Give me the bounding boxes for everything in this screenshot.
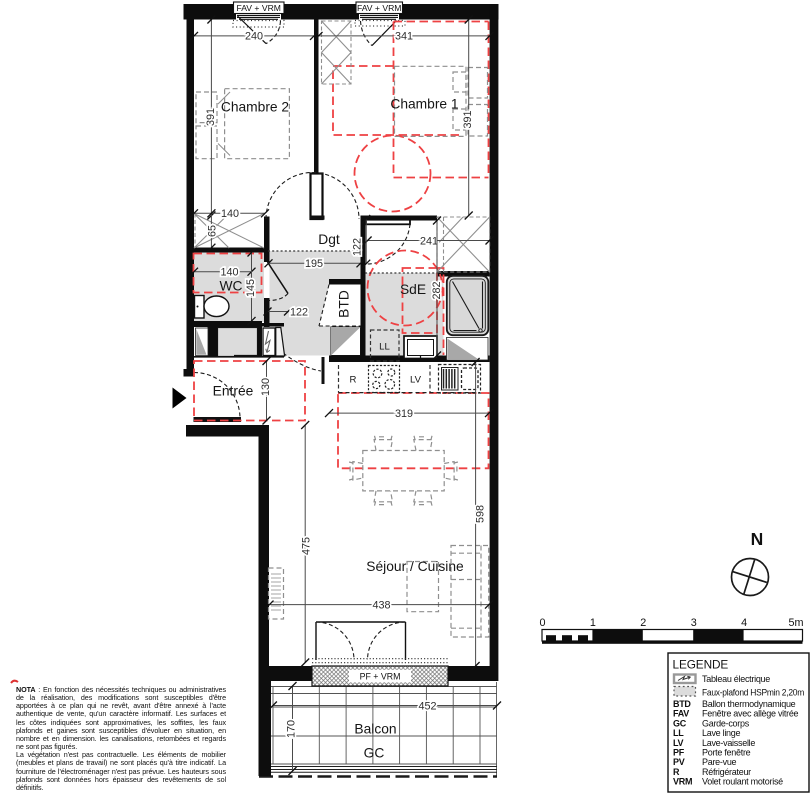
- svg-text:Dgt: Dgt: [318, 232, 340, 247]
- svg-text:3: 3: [691, 617, 697, 629]
- svg-text:LL: LL: [673, 728, 684, 738]
- svg-text:Séjour / Cuisine: Séjour / Cuisine: [366, 559, 464, 574]
- svg-text:FAV: FAV: [673, 709, 689, 719]
- svg-text:130: 130: [260, 378, 272, 396]
- svg-text:Tableau électrique: Tableau électrique: [702, 674, 770, 684]
- svg-text:PF + VRM: PF + VRM: [360, 672, 401, 682]
- svg-text:475: 475: [300, 537, 312, 555]
- svg-text:WC: WC: [220, 279, 243, 294]
- svg-text:282: 282: [431, 281, 443, 299]
- svg-text:Fenêtre avec allège vitrée: Fenêtre avec allège vitrée: [702, 709, 799, 719]
- svg-text:Balcon: Balcon: [354, 722, 396, 737]
- svg-text:GC: GC: [364, 746, 385, 761]
- svg-text:LL: LL: [379, 342, 390, 353]
- svg-text:240: 240: [245, 31, 263, 43]
- svg-text:598: 598: [474, 505, 486, 523]
- svg-text:140: 140: [221, 208, 239, 220]
- svg-text:Lave-vaisselle: Lave-vaisselle: [702, 738, 755, 748]
- svg-text:145: 145: [245, 279, 257, 297]
- svg-text:Lave linge: Lave linge: [702, 728, 741, 738]
- svg-text:0: 0: [539, 617, 545, 629]
- svg-text:Garde-corps: Garde-corps: [702, 718, 750, 728]
- svg-text:VRM: VRM: [673, 777, 692, 787]
- svg-text:341: 341: [395, 31, 413, 43]
- svg-text:LV: LV: [673, 738, 684, 748]
- svg-text:Porte fenêtre: Porte fenêtre: [702, 748, 751, 758]
- svg-text:N: N: [751, 529, 764, 549]
- svg-text:R: R: [673, 767, 680, 777]
- svg-text:Réfrigérateur: Réfrigérateur: [702, 767, 751, 777]
- svg-text:PV: PV: [673, 757, 685, 767]
- svg-text:LV: LV: [410, 375, 422, 386]
- svg-text:122: 122: [290, 306, 308, 318]
- svg-text:FAV + VRM: FAV + VRM: [236, 3, 281, 13]
- svg-text:Entrée: Entrée: [213, 384, 254, 399]
- svg-text:Chambre 2: Chambre 2: [221, 100, 289, 115]
- svg-text:170: 170: [285, 720, 297, 738]
- svg-text:Pare-vue: Pare-vue: [702, 757, 737, 767]
- svg-text:BTD: BTD: [673, 699, 691, 709]
- svg-text:FAV + VRM: FAV + VRM: [357, 3, 402, 13]
- svg-text:140: 140: [220, 267, 238, 279]
- svg-text:438: 438: [372, 599, 390, 611]
- svg-text:5m: 5m: [789, 617, 804, 629]
- svg-text:122: 122: [351, 238, 363, 256]
- svg-text:Faux-plafond HSPmin 2,20m: Faux-plafond HSPmin 2,20m: [702, 688, 804, 698]
- svg-text:Volet roulant motorisé: Volet roulant motorisé: [702, 777, 783, 787]
- svg-text:BTD: BTD: [337, 290, 352, 318]
- svg-text:241: 241: [420, 235, 438, 247]
- svg-text:Ballon thermodynamique: Ballon thermodynamique: [702, 699, 796, 709]
- svg-text:452: 452: [418, 700, 436, 712]
- svg-text:1: 1: [590, 617, 596, 629]
- svg-text:4: 4: [741, 617, 747, 629]
- svg-text:391: 391: [462, 110, 474, 128]
- svg-text:391: 391: [205, 108, 217, 126]
- svg-text:65: 65: [206, 225, 218, 237]
- svg-text:PF: PF: [673, 748, 685, 758]
- svg-text:SdE: SdE: [400, 282, 426, 297]
- svg-text:LEGENDE: LEGENDE: [673, 658, 729, 672]
- svg-text:319: 319: [395, 408, 413, 420]
- svg-text:GC: GC: [673, 718, 687, 728]
- svg-text:195: 195: [305, 258, 323, 270]
- svg-text:R: R: [350, 375, 357, 386]
- svg-text:Chambre 1: Chambre 1: [390, 97, 458, 112]
- svg-text:2: 2: [640, 617, 646, 629]
